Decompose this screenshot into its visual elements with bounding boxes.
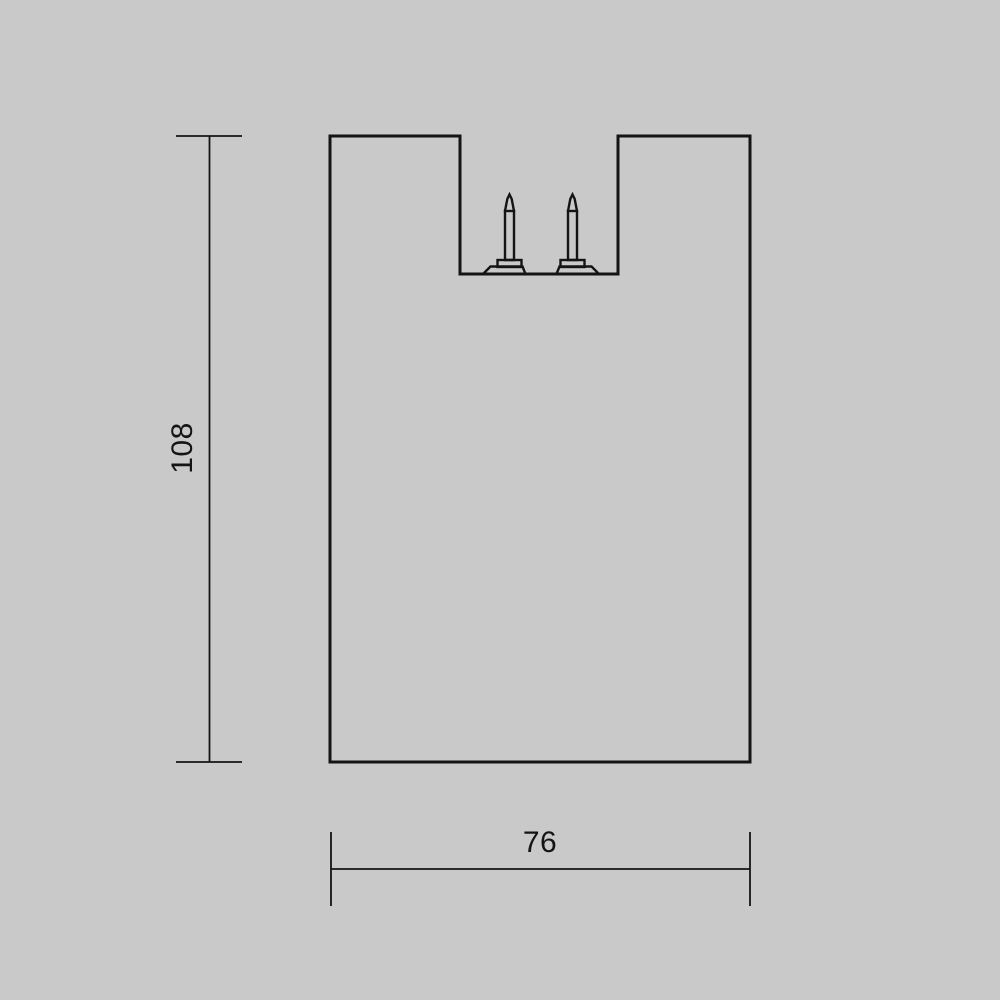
- drawing-canvas: 108 76: [0, 0, 1000, 1000]
- height-dimension: 108: [166, 136, 242, 762]
- fixture-body: [330, 136, 750, 762]
- fixture-outline-path: [330, 136, 750, 762]
- pin-left-base: [483, 267, 526, 275]
- contact-pin-left: [483, 195, 526, 275]
- pin-right-base: [557, 267, 600, 275]
- width-dimension-label: 76: [523, 826, 557, 859]
- contact-pin-right: [557, 195, 600, 275]
- pin-left-shaft: [505, 195, 514, 261]
- technical-drawing: 108 76: [0, 0, 1000, 1000]
- pin-right-shaft: [568, 195, 577, 261]
- height-dimension-label: 108: [166, 422, 199, 474]
- width-dimension: 76: [331, 826, 750, 906]
